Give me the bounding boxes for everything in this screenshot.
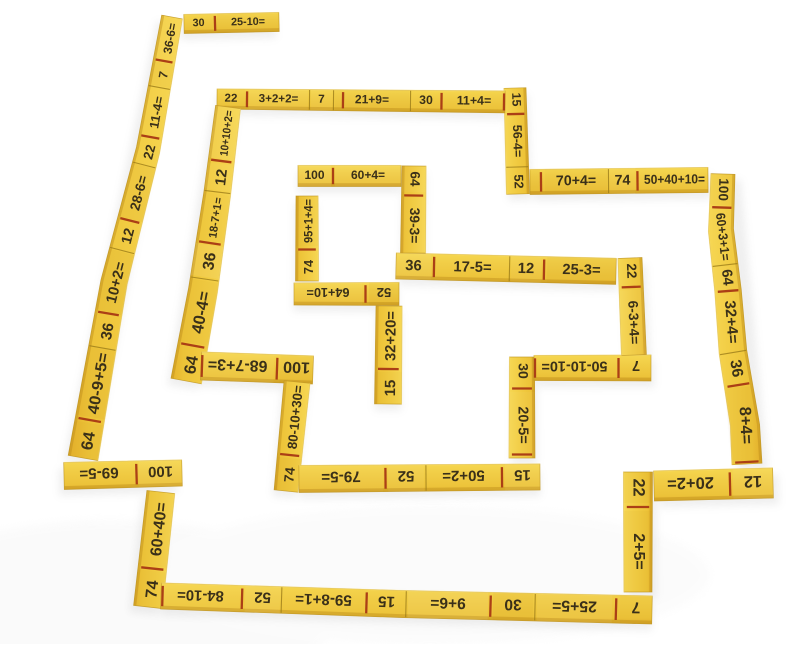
svg-text:22: 22 [225,93,238,105]
svg-text:3+2+2=: 3+2+2= [259,92,299,105]
svg-text:84-10=: 84-10= [177,586,225,604]
svg-text:12: 12 [744,472,763,490]
svg-text:21+9=: 21+9= [355,92,389,106]
svg-text:30: 30 [192,17,204,29]
svg-text:64: 64 [407,171,422,187]
svg-text:95+1+4=: 95+1+4= [303,199,316,243]
svg-text:15: 15 [377,592,395,610]
svg-text:74: 74 [142,579,162,599]
svg-text:100: 100 [304,168,324,182]
svg-text:22: 22 [630,478,648,496]
svg-text:56-4=: 56-4= [510,125,525,158]
svg-text:15: 15 [514,466,531,482]
svg-text:100: 100 [716,178,732,201]
svg-text:17-5=: 17-5= [453,259,492,276]
svg-text:20-5=: 20-5= [514,406,530,443]
svg-text:68-7+3=: 68-7+3= [208,355,268,374]
svg-text:12: 12 [213,168,231,186]
svg-text:74: 74 [301,259,316,274]
svg-text:25-3=: 25-3= [562,262,601,279]
svg-text:2+5=: 2+5= [630,533,647,569]
svg-text:36: 36 [98,322,118,342]
svg-text:60+4=: 60+4= [351,168,385,182]
svg-text:7: 7 [318,92,325,106]
svg-text:64: 64 [718,268,736,287]
svg-text:59-8+1=: 59-8+1= [295,590,352,609]
svg-text:50+40+10=: 50+40+10= [644,171,706,187]
svg-text:22: 22 [624,263,640,279]
svg-text:52: 52 [511,174,526,189]
svg-text:30: 30 [515,363,531,379]
svg-text:9+6=: 9+6= [430,594,466,612]
svg-text:32+20=: 32+20= [383,311,400,361]
svg-text:100: 100 [148,462,173,479]
svg-text:39-3=: 39-3= [407,208,422,244]
svg-text:32+4=: 32+4= [721,300,741,344]
svg-text:50-10-10=: 50-10-10= [541,357,607,373]
svg-text:100: 100 [283,358,311,376]
svg-text:11+4=: 11+4= [457,93,492,107]
svg-text:36: 36 [726,359,746,379]
svg-text:52: 52 [377,285,391,300]
svg-text:7: 7 [632,357,640,373]
svg-text:15: 15 [509,92,523,106]
svg-text:52: 52 [398,467,415,484]
svg-text:74: 74 [615,173,631,189]
svg-text:15: 15 [382,380,399,397]
svg-text:36: 36 [200,251,219,271]
svg-text:70+4=: 70+4= [556,173,596,189]
svg-text:79-5=: 79-5= [321,468,361,485]
svg-text:50+2=: 50+2= [442,467,485,484]
svg-text:69-5=: 69-5= [79,464,119,482]
svg-text:8+4=: 8+4= [736,406,756,444]
svg-text:36: 36 [405,258,422,274]
svg-text:12: 12 [518,261,535,277]
svg-text:52: 52 [254,588,271,606]
svg-text:30: 30 [504,595,522,612]
svg-text:20+2=: 20+2= [667,473,714,492]
svg-text:64+10=: 64+10= [306,285,349,299]
svg-text:30: 30 [419,93,433,107]
svg-text:74: 74 [281,466,297,483]
svg-text:6-3+4=: 6-3+4= [625,300,642,344]
svg-text:7: 7 [631,598,640,615]
svg-text:25+5=: 25+5= [552,596,597,614]
svg-text:25-10=: 25-10= [231,16,265,29]
